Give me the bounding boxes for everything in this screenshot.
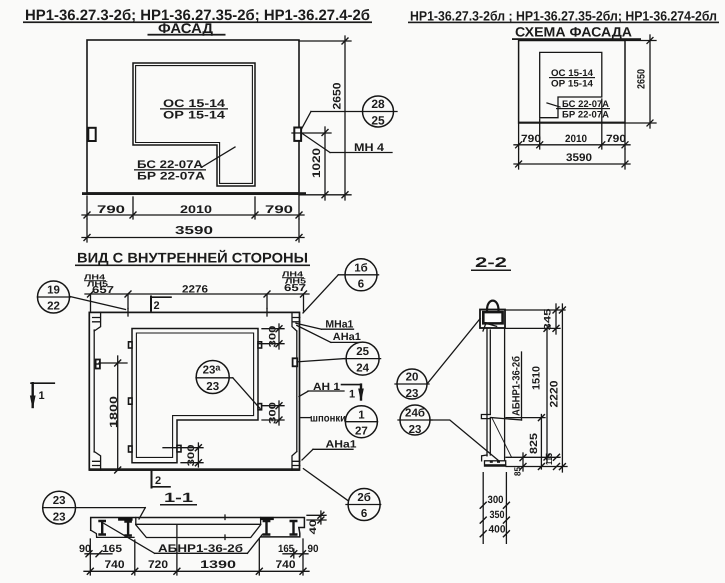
svg-text:2б: 2б [357, 492, 371, 504]
svg-text:1020: 1020 [311, 148, 323, 178]
svg-text:165: 165 [102, 543, 122, 555]
svg-text:740: 740 [105, 559, 125, 571]
svg-text:300: 300 [488, 494, 504, 506]
svg-text:790: 790 [265, 204, 293, 216]
svg-text:1-1: 1-1 [164, 490, 194, 505]
svg-text:2: 2 [155, 475, 161, 487]
svg-text:300: 300 [186, 444, 197, 466]
svg-text:28: 28 [371, 97, 385, 111]
svg-text:6: 6 [361, 508, 367, 520]
svg-text:24б: 24б [405, 408, 425, 420]
svg-text:2010: 2010 [180, 204, 212, 216]
svg-text:2: 2 [154, 300, 160, 312]
svg-text:300: 300 [268, 402, 279, 424]
svg-text:23: 23 [53, 512, 66, 524]
svg-text:115: 115 [544, 453, 554, 465]
svg-text:6: 6 [358, 279, 364, 291]
svg-text:740: 740 [276, 559, 296, 571]
svg-text:шпонки: шпонки [310, 413, 346, 425]
svg-text:22: 22 [47, 301, 60, 313]
svg-text:НР1-36.27.3-2бл ; НР1-36.27.35: НР1-36.27.3-2бл ; НР1-36.27.35-2бл; НР1-… [410, 9, 717, 24]
svg-text:СХЕМА ФАСАДА: СХЕМА ФАСАДА [515, 25, 632, 40]
svg-text:20: 20 [406, 372, 419, 384]
svg-text:3590: 3590 [175, 225, 213, 237]
svg-text:24: 24 [356, 363, 369, 375]
svg-text:790: 790 [521, 133, 541, 145]
svg-text:1510: 1510 [531, 366, 543, 390]
svg-text:23: 23 [53, 495, 66, 507]
svg-text:1390: 1390 [200, 559, 236, 571]
svg-text:40: 40 [308, 520, 319, 535]
svg-text:3590: 3590 [566, 152, 592, 164]
svg-text:ОР 15-14: ОР 15-14 [163, 110, 226, 122]
svg-text:2276: 2276 [182, 284, 208, 296]
svg-text:1800: 1800 [108, 396, 120, 428]
svg-text:ВИД С ВНУТРЕННЕЙ СТОРОНЫ: ВИД С ВНУТРЕННЕЙ СТОРОНЫ [77, 250, 308, 266]
svg-text:2-2: 2-2 [475, 254, 507, 270]
svg-text:2220: 2220 [549, 381, 561, 408]
svg-text:23: 23 [206, 381, 219, 393]
svg-text:1: 1 [358, 410, 365, 422]
svg-text:165: 165 [278, 543, 294, 555]
svg-text:2650: 2650 [332, 83, 344, 110]
svg-text:2010: 2010 [565, 133, 587, 145]
svg-text:25: 25 [356, 346, 369, 358]
svg-text:1б: 1б [354, 263, 368, 275]
svg-text:790: 790 [97, 204, 125, 216]
svg-text:2650: 2650 [636, 69, 648, 89]
svg-text:25: 25 [371, 114, 385, 128]
svg-text:1: 1 [349, 389, 355, 401]
svg-text:23: 23 [409, 424, 422, 436]
svg-text:790: 790 [606, 133, 626, 145]
svg-text:19: 19 [47, 285, 60, 297]
svg-text:ОР 15-14: ОР 15-14 [551, 79, 594, 90]
svg-text:90: 90 [79, 543, 91, 555]
svg-text:825: 825 [528, 433, 540, 454]
svg-text:1: 1 [39, 390, 45, 402]
svg-text:400: 400 [489, 524, 506, 536]
svg-text:90: 90 [308, 543, 319, 555]
svg-text:БР 22-07А: БР 22-07А [137, 171, 205, 183]
svg-text:350: 350 [490, 509, 505, 521]
svg-text:23: 23 [406, 388, 419, 400]
svg-text:АБНР1-36-2б: АБНР1-36-2б [511, 356, 523, 416]
svg-text:АНа1: АНа1 [333, 331, 361, 343]
svg-text:85: 85 [513, 467, 523, 476]
svg-text:300: 300 [268, 326, 279, 348]
svg-text:720: 720 [148, 559, 168, 571]
svg-text:27: 27 [355, 426, 368, 438]
